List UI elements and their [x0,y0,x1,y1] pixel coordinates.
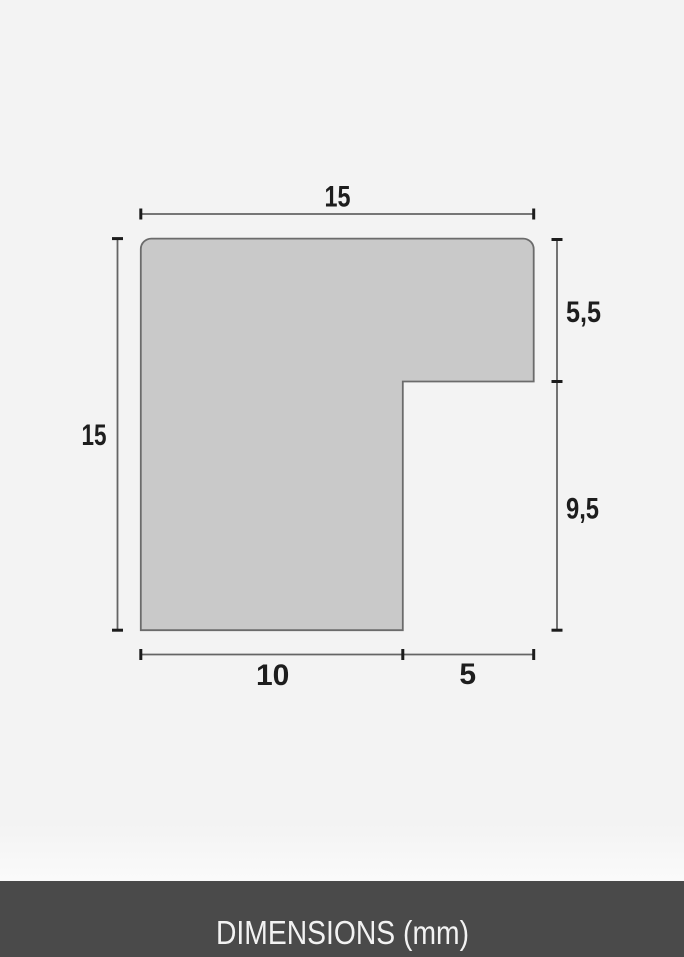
svg-text:DIMENSIONS (mm): DIMENSIONS (mm) [216,914,469,951]
svg-text:15: 15 [325,181,351,214]
svg-text:15: 15 [82,419,107,452]
svg-text:10: 10 [256,659,289,692]
svg-text:5,5: 5,5 [566,296,601,329]
svg-text:5: 5 [459,658,476,691]
svg-text:9,5: 9,5 [566,493,599,526]
